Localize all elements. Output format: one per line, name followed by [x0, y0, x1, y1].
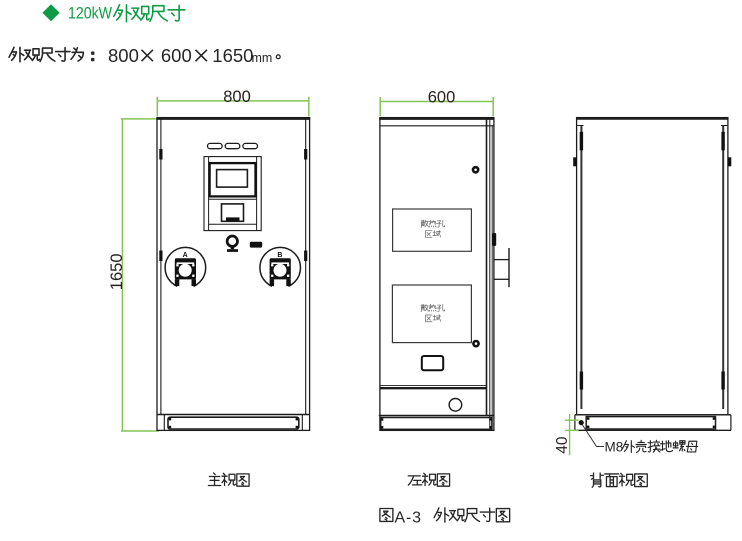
svg-text:800: 800 — [108, 45, 139, 66]
svg-text:M8: M8 — [605, 440, 624, 455]
svg-text:600: 600 — [161, 45, 192, 66]
svg-text:120kW: 120kW — [68, 4, 112, 23]
svg-text:1650: 1650 — [108, 253, 126, 290]
svg-text:B: B — [277, 252, 282, 259]
svg-text:A-3: A-3 — [395, 509, 422, 526]
svg-text:40: 40 — [554, 436, 571, 454]
svg-text:A: A — [183, 252, 188, 259]
svg-text:1650: 1650 — [212, 45, 253, 66]
svg-text:mm: mm — [252, 51, 273, 65]
svg-text:600: 600 — [428, 89, 456, 107]
svg-text:800: 800 — [223, 88, 251, 106]
